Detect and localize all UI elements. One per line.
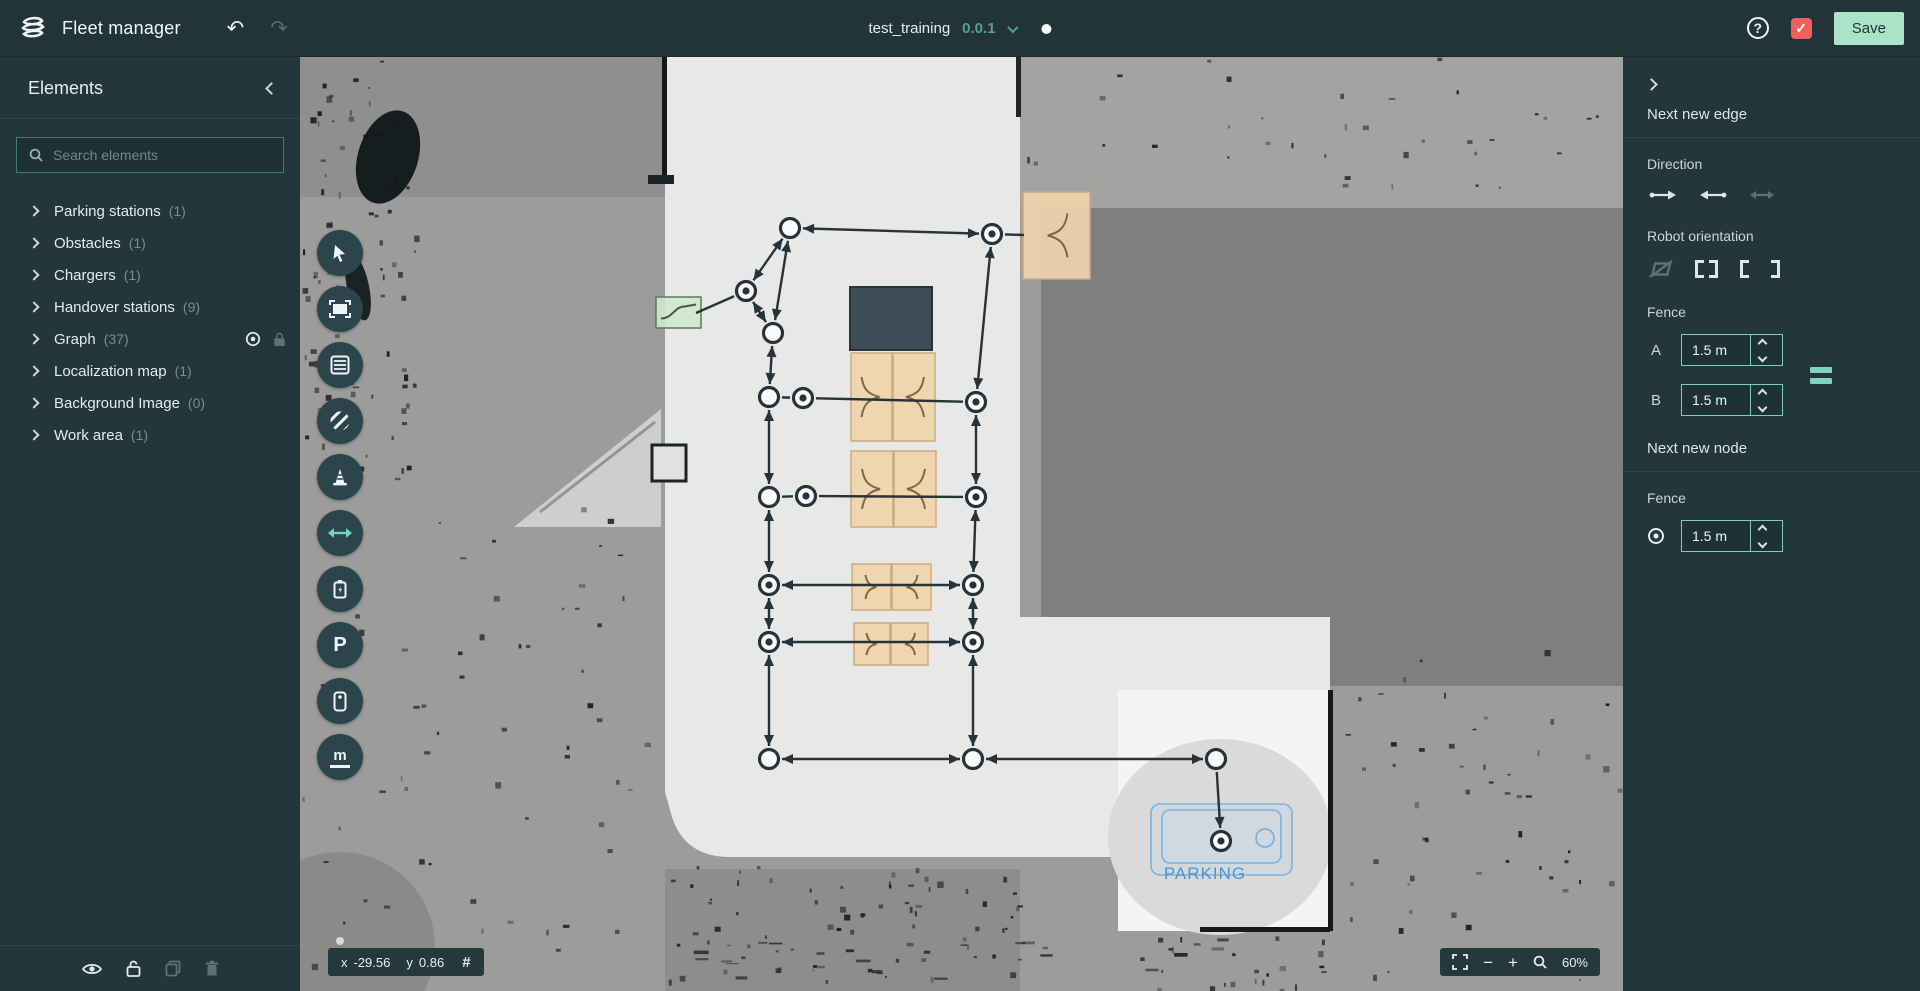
- map-version[interactable]: 0.0.1: [962, 20, 995, 37]
- sidebar-item-work-area[interactable]: Work area(1): [0, 419, 300, 451]
- obstacle-tool-button[interactable]: [317, 454, 363, 500]
- fence-a-stepper[interactable]: [1750, 335, 1774, 365]
- top-bar: Fleet manager ↶ ↷ test_training 0.0.1 ? …: [0, 0, 1920, 57]
- graph-node-n12[interactable]: [964, 576, 983, 595]
- measure-tool-button[interactable]: m: [317, 734, 363, 780]
- stepper-up-icon[interactable]: [1758, 338, 1768, 348]
- graph-node-n17[interactable]: [1207, 750, 1226, 769]
- tree-item-count: (1): [169, 203, 186, 219]
- edge-fence-inputs: A B: [1623, 334, 1920, 416]
- stepper-down-icon[interactable]: [1758, 538, 1768, 548]
- tree-item-count: (1): [124, 267, 141, 283]
- zoom-controls-bar: − + 60%: [1440, 948, 1600, 976]
- orientation-both-icon[interactable]: [1693, 258, 1720, 280]
- sidebar-item-parking-stations[interactable]: Parking stations(1): [0, 195, 300, 227]
- fence-b-input-group: [1681, 384, 1783, 416]
- fit-view-tool-button[interactable]: [317, 286, 363, 332]
- coord-x-value: -29.56: [354, 955, 391, 970]
- handover-station[interactable]: [851, 451, 893, 527]
- sidebar-item-localization-map[interactable]: Localization map(1): [0, 355, 300, 387]
- tree-item-label: Chargers: [54, 267, 116, 284]
- handover-station[interactable]: [892, 564, 931, 610]
- map-toolbar: P m: [317, 230, 363, 780]
- node-fence-stepper[interactable]: [1750, 521, 1774, 551]
- node-target-icon: [1647, 527, 1665, 545]
- hatched-zone-icon: [329, 410, 351, 432]
- orientation-right-icon[interactable]: [1769, 258, 1782, 280]
- chevron-down-icon[interactable]: [1007, 21, 1018, 32]
- stepper-up-icon[interactable]: [1758, 524, 1768, 534]
- map-name: test_training: [868, 20, 950, 37]
- search-icon: [29, 148, 43, 162]
- rack-tool-button[interactable]: [317, 342, 363, 388]
- sidebar-item-handover-stations[interactable]: Handover stations(9): [0, 291, 300, 323]
- node-fence-input-group: [1681, 520, 1783, 552]
- tree-item-label: Obstacles: [54, 235, 121, 252]
- zoom-magnifier-icon[interactable]: [1533, 955, 1547, 969]
- graph-node-n3[interactable]: [737, 282, 756, 301]
- tree-item-count: (1): [129, 235, 146, 251]
- stepper-up-icon[interactable]: [1758, 388, 1768, 398]
- traffic-cone-icon: [330, 467, 350, 487]
- zoom-out-button[interactable]: −: [1483, 954, 1493, 971]
- search-box[interactable]: [16, 137, 284, 173]
- coord-y-value: 0.86: [419, 955, 444, 970]
- handover-station[interactable]: [893, 353, 935, 441]
- robot-orientation-options: [1623, 258, 1920, 280]
- graph-edge[interactable]: [1005, 234, 1024, 235]
- graph-node-n9[interactable]: [797, 487, 816, 506]
- chevron-right-icon: [28, 237, 39, 248]
- graph-node-n10[interactable]: [967, 488, 986, 507]
- graph-node-n16[interactable]: [964, 750, 983, 769]
- tree-item-count: (9): [183, 299, 200, 315]
- robot-station-icon: [333, 691, 347, 712]
- coord-x-label: x: [341, 955, 348, 970]
- parking-tool-button[interactable]: P: [317, 622, 363, 668]
- lock-icon[interactable]: [273, 332, 286, 347]
- unsaved-status-dot: [1042, 24, 1052, 34]
- occupancy-map[interactable]: PARKING: [300, 57, 1623, 991]
- grid-toggle-icon[interactable]: #: [462, 954, 470, 971]
- handover-station[interactable]: [851, 353, 892, 441]
- battery-icon: [333, 579, 347, 599]
- graph-node-n8[interactable]: [760, 488, 779, 507]
- chevron-right-icon: [28, 205, 39, 216]
- handover-station[interactable]: [1023, 192, 1090, 279]
- orientation-none-icon[interactable]: [1647, 258, 1675, 280]
- chevron-right-icon: [28, 365, 39, 376]
- search-input[interactable]: [53, 147, 271, 163]
- tree-item-count: (37): [104, 331, 129, 347]
- chevron-right-icon: [28, 429, 39, 440]
- target-icon[interactable]: [245, 331, 261, 347]
- node-fence-input[interactable]: [1682, 521, 1750, 551]
- direction-label: Direction: [1623, 156, 1920, 172]
- edge-fence-label: Fence: [1623, 304, 1920, 320]
- fence-b-input[interactable]: [1682, 385, 1750, 415]
- graph-edge[interactable]: [819, 496, 963, 497]
- cursor-icon: [330, 243, 350, 263]
- direction-backward-icon[interactable]: [1697, 186, 1729, 204]
- visibility-eye-icon[interactable]: [82, 962, 102, 976]
- frame-icon: [329, 300, 351, 318]
- sidebar-title: Elements: [28, 78, 103, 99]
- chevron-right-icon: [28, 397, 39, 408]
- obstacle[interactable]: [850, 287, 932, 350]
- save-button[interactable]: Save: [1834, 12, 1904, 45]
- select-tool-button[interactable]: [317, 230, 363, 276]
- tree-item-label: Graph: [54, 331, 96, 348]
- doorway: [652, 445, 686, 481]
- node-fence-label: Fence: [1623, 490, 1920, 506]
- fence-a-label: A: [1651, 342, 1681, 359]
- zone-tool-button[interactable]: [317, 398, 363, 444]
- robot-orientation-label: Robot orientation: [1623, 228, 1920, 244]
- sidebar-item-background-image[interactable]: Background Image(0): [0, 387, 300, 419]
- node-section-title: Next new node: [1623, 440, 1920, 457]
- parking-p-icon: P: [333, 634, 346, 657]
- fence-a-input[interactable]: [1682, 335, 1750, 365]
- fullscreen-icon[interactable]: [1452, 954, 1468, 970]
- sidebar-collapse-button[interactable]: [263, 77, 280, 100]
- graph-node-n2[interactable]: [983, 225, 1002, 244]
- handover-tool-button[interactable]: [317, 678, 363, 724]
- edge-tool-button[interactable]: [317, 510, 363, 556]
- graph-node-n11[interactable]: [760, 576, 779, 595]
- app-title: Fleet manager: [62, 18, 181, 39]
- shelf-icon: [330, 355, 350, 375]
- graph-node-n4[interactable]: [764, 324, 783, 343]
- updates-check-icon[interactable]: ✓: [1791, 18, 1812, 39]
- lock-open-icon[interactable]: [126, 960, 141, 977]
- elements-tree: Parking stations(1)Obstacles(1)Chargers(…: [0, 181, 300, 945]
- coord-y-label: y: [406, 955, 413, 970]
- graph-node-n14[interactable]: [964, 633, 983, 652]
- fence-b-label: B: [1651, 392, 1681, 409]
- tree-item-count: (1): [131, 427, 148, 443]
- stepper-down-icon[interactable]: [1758, 402, 1768, 412]
- tree-item-label: Handover stations: [54, 299, 175, 316]
- parking-label: PARKING: [1164, 864, 1246, 883]
- help-icon[interactable]: ?: [1747, 17, 1769, 39]
- sidebar-item-chargers[interactable]: Chargers(1): [0, 259, 300, 291]
- trash-icon[interactable]: [205, 960, 219, 977]
- tree-item-label: Localization map: [54, 363, 167, 380]
- chevron-right-icon: [28, 269, 39, 280]
- cursor-coordinates-bar: x -29.56 y 0.86 #: [328, 948, 484, 976]
- panel-collapse-button[interactable]: [1647, 77, 1656, 92]
- graph-node-n18[interactable]: [1212, 832, 1231, 851]
- fence-a-input-group: [1681, 334, 1783, 366]
- map-canvas[interactable]: PARKING: [300, 57, 1623, 991]
- graph-node-n6[interactable]: [794, 389, 813, 408]
- direction-options: [1623, 186, 1920, 204]
- direction-forward-icon[interactable]: [1647, 186, 1679, 204]
- graph-node-n5[interactable]: [760, 388, 779, 407]
- node-fence-inputs: [1623, 520, 1920, 552]
- sidebar-item-obstacles[interactable]: Obstacles(1): [0, 227, 300, 259]
- fence-b-stepper[interactable]: [1750, 385, 1774, 415]
- chevron-right-icon: [28, 333, 39, 344]
- edge-section-title: Next new edge: [1623, 106, 1920, 123]
- tree-item-label: Background Image: [54, 395, 180, 412]
- graph-node-n1[interactable]: [781, 219, 800, 238]
- zoom-in-button[interactable]: +: [1508, 954, 1518, 971]
- edge-double-arrow-icon: [328, 526, 352, 540]
- link-a-b-equals-icon[interactable]: [1810, 367, 1832, 384]
- chevron-left-icon: [265, 82, 278, 95]
- handover-station[interactable]: [852, 564, 891, 610]
- chevron-right-icon: [1645, 78, 1658, 91]
- graph-node-n13[interactable]: [760, 633, 779, 652]
- duplicate-icon[interactable]: [165, 960, 181, 977]
- chevron-right-icon: [28, 301, 39, 312]
- app-logo-icon: [18, 13, 48, 43]
- tree-item-label: Work area: [54, 427, 123, 444]
- measure-m-icon: m: [330, 747, 349, 768]
- handover-station[interactable]: [854, 623, 890, 665]
- handover-station[interactable]: [894, 451, 936, 527]
- sidebar-footer: [0, 945, 300, 991]
- charger-station[interactable]: [656, 297, 701, 328]
- stepper-down-icon[interactable]: [1758, 352, 1768, 362]
- properties-panel: Next new edge Direction Robot orientatio…: [1623, 57, 1920, 991]
- charger-tool-button[interactable]: [317, 566, 363, 612]
- tree-item-label: Parking stations: [54, 203, 161, 220]
- zoom-level: 60%: [1562, 955, 1588, 970]
- undo-icon[interactable]: ↶: [221, 14, 251, 43]
- graph-node-n7[interactable]: [967, 393, 986, 412]
- direction-bidirectional-icon[interactable]: [1747, 186, 1777, 204]
- sidebar-item-graph[interactable]: Graph(37): [0, 323, 300, 355]
- tree-item-count: (0): [188, 395, 205, 411]
- graph-node-n15[interactable]: [760, 750, 779, 769]
- tree-item-count: (1): [175, 363, 192, 379]
- redo-icon[interactable]: ↷: [264, 14, 294, 43]
- elements-sidebar: Elements Parking stations(1)Obstacles(1)…: [0, 57, 300, 991]
- handover-station[interactable]: [891, 623, 928, 665]
- orientation-left-icon[interactable]: [1738, 258, 1751, 280]
